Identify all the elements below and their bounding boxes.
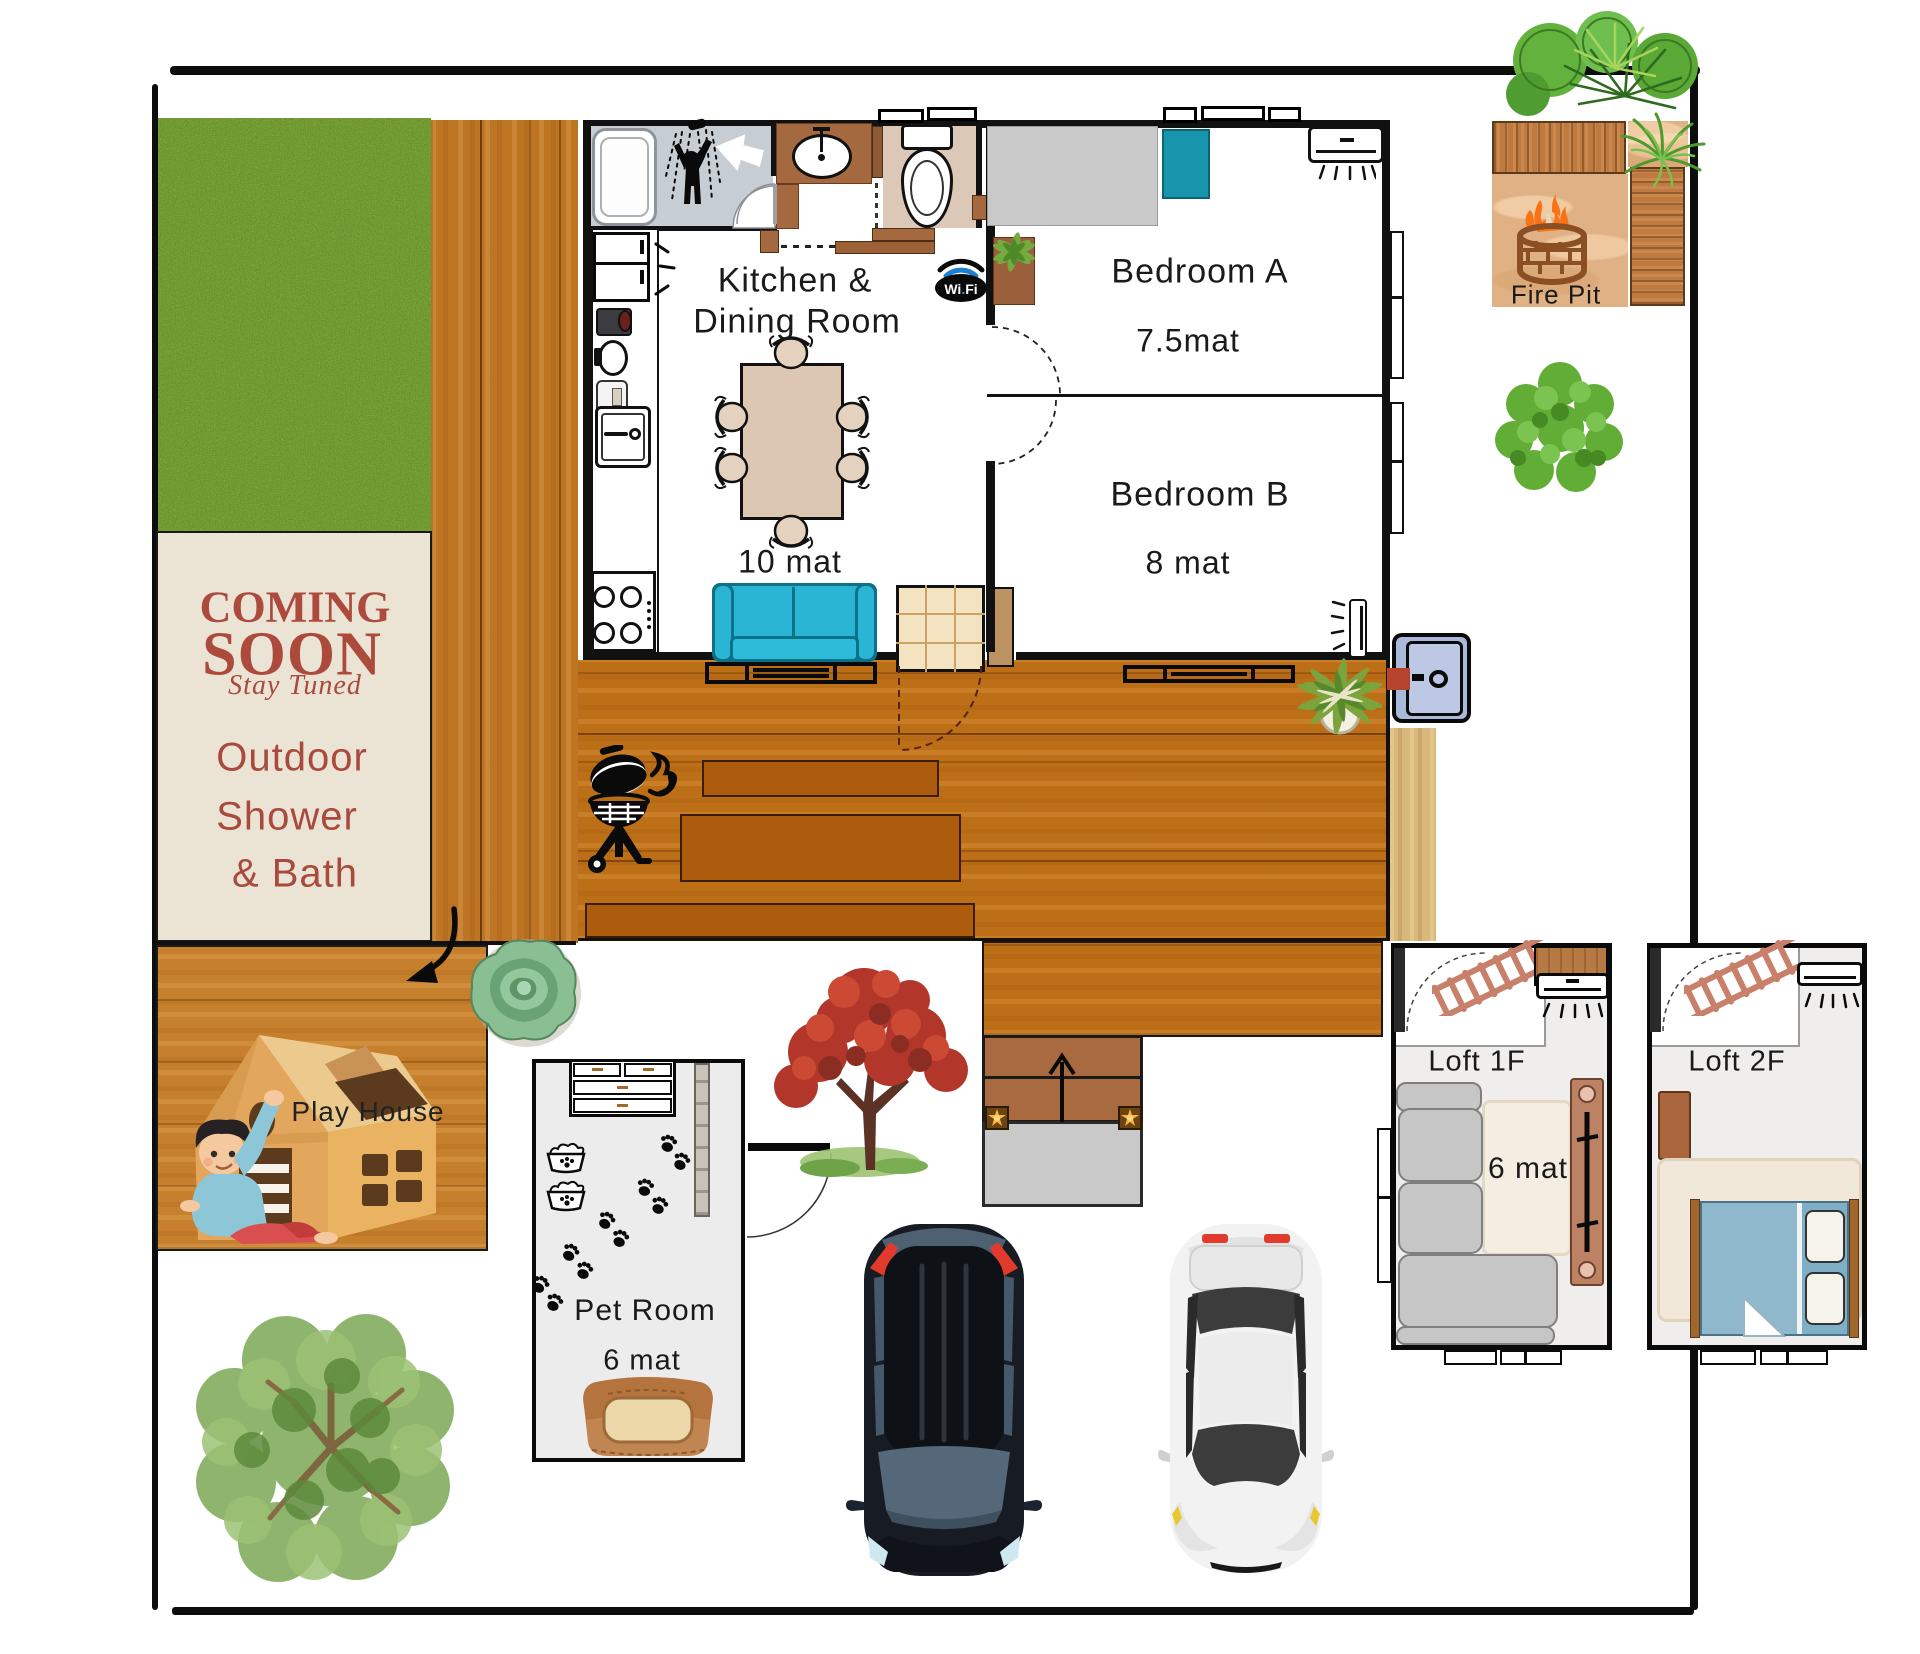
svg-text:Wi.Fi: Wi.Fi — [944, 281, 977, 297]
